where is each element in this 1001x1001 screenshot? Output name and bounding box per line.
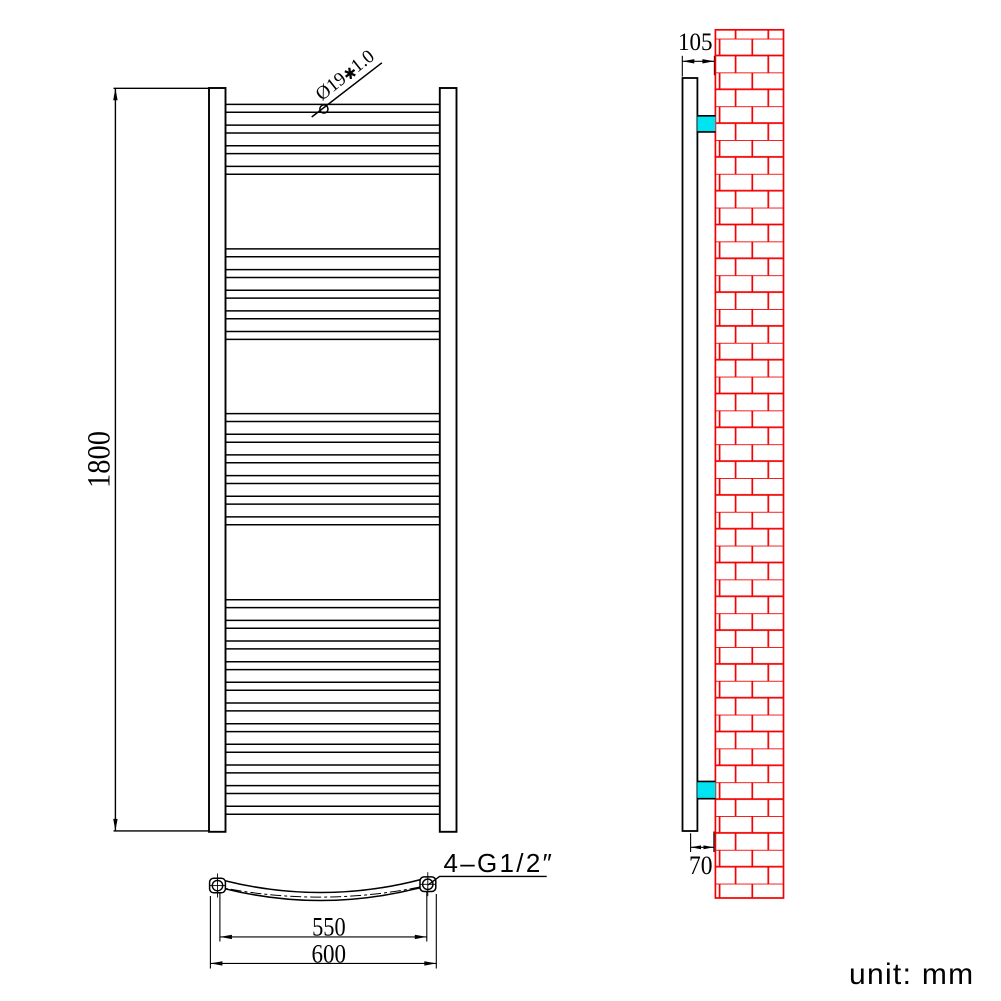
svg-text:105: 105 bbox=[678, 27, 713, 56]
svg-text:550: 550 bbox=[312, 912, 346, 942]
svg-text:unit: mm: unit: mm bbox=[849, 958, 974, 991]
svg-text:1800: 1800 bbox=[82, 431, 118, 488]
svg-text:600: 600 bbox=[311, 939, 346, 969]
svg-text:70: 70 bbox=[689, 851, 713, 880]
svg-text:4–G1/2″: 4–G1/2″ bbox=[444, 848, 555, 878]
